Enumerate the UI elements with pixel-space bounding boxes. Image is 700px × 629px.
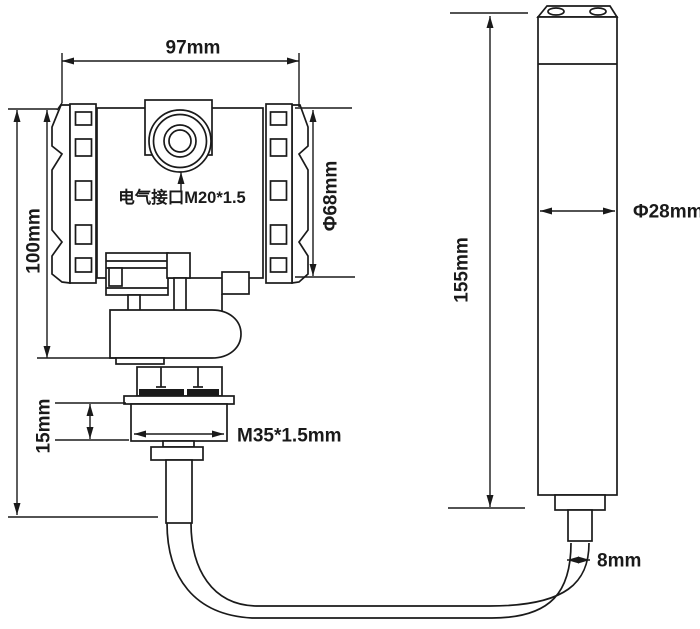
gasket [187,389,219,396]
label-155mm: 155mm [452,237,473,303]
probe-bottom-step [555,495,605,510]
cable-inner-edge [191,523,589,606]
label-m35: M35*1.5mm [237,426,342,447]
cap-notch [271,258,287,272]
probe-cable-neck [568,510,592,541]
bracket-block [167,253,190,278]
flange-plate [124,396,234,404]
cap-notch [76,181,92,200]
port-ring-inner [169,130,191,152]
left-stem [128,295,140,311]
dimension-nut-height-15mm: 15mm [34,399,130,454]
probe-top-hole [590,8,606,15]
cap-notch [271,225,287,244]
washer [151,447,203,460]
probe-body [538,17,617,495]
label-electrical-port: 电气接口M20*1.5 [118,187,245,207]
cap-notch [76,258,92,272]
dimension-probe-length-155mm: 155mm [448,13,528,508]
sensor-dimension-diagram: 97mm 100mm Φ68mm 电气接口M20*1.5 15mm M35*1.… [0,0,700,629]
label-97mm: 97mm [166,38,221,59]
label-15mm: 15mm [34,399,55,454]
dimension-width-97mm: 97mm [57,38,299,111]
left-cap-silhouette [52,105,70,283]
probe-top-hole [548,8,564,15]
cap-notch [76,139,92,156]
technical-drawing-canvas: 97mm 100mm Φ68mm 电气接口M20*1.5 15mm M35*1.… [0,0,700,629]
cap-notch [76,225,92,244]
label-8mm: 8mm [597,551,641,572]
bracket-slot [109,268,122,286]
cable-outer-edge [167,523,571,618]
pressure-housing [110,310,241,358]
probe-side-view [538,6,617,541]
cap-notch [271,112,287,125]
label-28mm: Φ28mm [633,202,700,223]
dimension-cable-diameter-8mm: 8mm [567,551,641,572]
center-stem [174,278,186,311]
connection-cable [167,523,589,618]
housing-lip [116,358,164,364]
mounting-nut [131,404,227,441]
label-100mm: 100mm [24,208,45,274]
cable-gland-tube [166,460,192,523]
right-step-block [222,272,249,294]
cap-notch [271,139,287,156]
gasket [139,389,184,396]
nut-stem [163,441,194,447]
right-cap-silhouette [292,105,308,283]
cap-notch [271,181,287,200]
cap-notch [76,112,92,125]
label-68mm: Φ68mm [321,161,342,232]
transmitter-front-view [52,100,308,523]
